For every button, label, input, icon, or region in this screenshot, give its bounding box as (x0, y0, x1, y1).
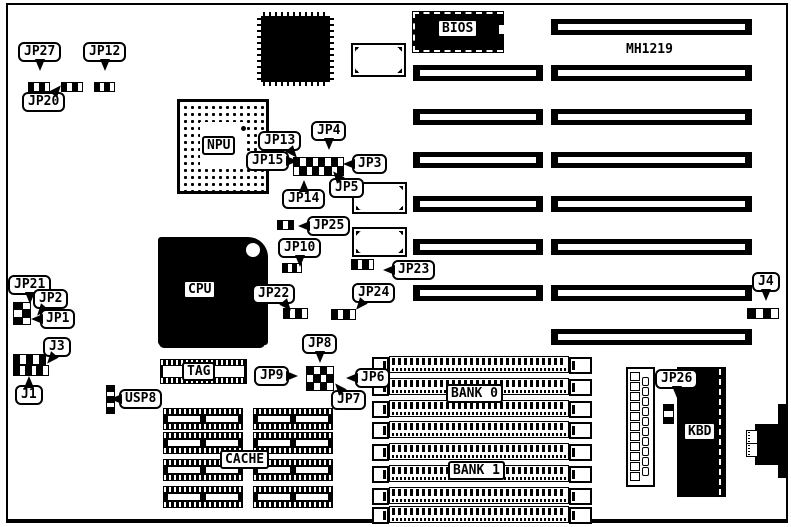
jp27-jumper (28, 82, 50, 92)
cache-socket-slot (258, 440, 290, 446)
jp8-jumper-block-pin (307, 367, 313, 374)
power-pin-hole (642, 377, 649, 386)
callout-jp10: JP10 (278, 238, 321, 258)
callout-jp20: JP20 (22, 92, 65, 112)
jp12-jumper-pin (100, 83, 104, 91)
simm-row-8-left-latch (372, 507, 389, 524)
callout-tail-jp10 (295, 255, 305, 267)
cache-socket-slot (206, 494, 238, 500)
cache-socket-slot (206, 416, 238, 422)
callout-label-jp9: JP9 (260, 368, 283, 383)
simm-row-1-right-latch (569, 357, 592, 374)
jp24-jumper (331, 309, 356, 320)
callout-jp23: JP23 (392, 260, 435, 280)
callout-tail-j1 (24, 376, 34, 388)
j1-header-pin (14, 366, 19, 375)
callout-jp5: JP5 (329, 178, 364, 198)
jp12-jumper (94, 82, 115, 92)
power-connector (626, 367, 655, 487)
isa-slot-2-left (413, 65, 543, 81)
keyboard-connector-pin-top (746, 430, 758, 444)
j1-header-pin (32, 366, 37, 375)
jp26-jumper-pin (664, 411, 673, 416)
chipset-qfp-chip (261, 16, 330, 82)
oscillator-3 (352, 227, 407, 257)
jp8-jumper-block-pin (321, 367, 327, 374)
callout-label-jp25: JP25 (313, 218, 344, 233)
tag-label: TAG (182, 362, 215, 381)
jp27-jumper-pin (40, 83, 44, 91)
qfp-pins-bottom (263, 82, 328, 86)
isa-slot-4 (551, 152, 752, 168)
jp27-jumper-pin (45, 83, 49, 91)
j3-header (13, 354, 46, 365)
callout-usp8: USP8 (119, 389, 162, 409)
power-pin-hole (642, 397, 649, 406)
keyboard-connector-bracket (778, 404, 787, 478)
jp24-jumper-pin (338, 310, 343, 319)
j3-header-pin (33, 355, 38, 364)
simm-row-3-left-latch (372, 401, 389, 418)
npu-jumper-block-pin (313, 167, 318, 175)
callout-jp22: JP22 (252, 284, 295, 304)
j1-header-pin (26, 366, 31, 375)
power-pin-hole (630, 412, 640, 421)
power-pin-hole (642, 407, 649, 416)
cache-socket-1 (163, 408, 243, 430)
oscillator-1 (351, 43, 406, 77)
j4-jumper-pin (764, 309, 771, 318)
j4-jumper-pin (748, 309, 755, 318)
callout-jp9: JP9 (254, 366, 289, 386)
npu-jumper-block-pin (332, 158, 337, 166)
callout-label-jp12: JP12 (89, 44, 120, 59)
jp20-jumper (61, 82, 83, 92)
jp25-jumper-pin (283, 221, 287, 229)
jp23-jumper-pin (369, 260, 374, 269)
callout-tail-jp15 (286, 156, 298, 166)
power-pin-hole (630, 402, 640, 411)
callout-tail-j4 (761, 289, 771, 301)
callout-tail-jp14 (299, 180, 309, 192)
jp26-jumper-pin (664, 418, 673, 423)
isa-slot-6 (551, 239, 752, 255)
j4-jumper-pin (756, 309, 763, 318)
simm-row-7-right-latch (569, 488, 592, 505)
jp8-jumper-block (306, 366, 334, 391)
callout-tail-jp27 (35, 59, 45, 71)
cache-socket-slot (168, 440, 200, 446)
callout-tail-usp8 (110, 394, 122, 404)
isa-slot-5-left (413, 196, 543, 212)
power-pin-hole (630, 452, 640, 461)
callout-tail-jp8 (315, 351, 325, 363)
callout-jp13: JP13 (258, 131, 301, 151)
callout-tail-jp3 (343, 159, 355, 169)
jp8-jumper-block-pin (321, 375, 327, 382)
npu-jumper-block-pin (319, 158, 324, 166)
j3-header-pin (20, 355, 25, 364)
isa-slot-4-left (413, 152, 543, 168)
simm-row-5-left-latch (372, 444, 389, 461)
isa-slot-2 (551, 65, 752, 81)
jp12-jumper-pin (105, 83, 109, 91)
jp8-jumper-block-pin (314, 367, 320, 374)
simm-row-1 (389, 356, 569, 373)
callout-jp12: JP12 (83, 42, 126, 62)
isa-slot-1 (551, 19, 752, 35)
jp24-jumper-pin (350, 310, 355, 319)
cache-socket-slot (168, 467, 200, 473)
j1-header-pin (20, 366, 25, 375)
board-model-label: MH1219 (626, 42, 673, 57)
npu-jumper-block-pin (319, 167, 324, 175)
callout-jp27: JP27 (18, 42, 61, 62)
callout-jp24: JP24 (352, 283, 395, 303)
isa-slot-7-left (413, 285, 543, 301)
usp8-jumper-pin (107, 386, 114, 391)
power-pin-hole (630, 432, 640, 441)
simm-row-8-right-latch (569, 507, 592, 524)
simm-row-4 (389, 421, 569, 438)
callout-jp2: JP2 (33, 289, 68, 309)
power-pin-hole (642, 467, 649, 476)
jp23-jumper (351, 259, 374, 270)
cache-socket-slot (296, 467, 328, 473)
callout-label-jp10: JP10 (284, 240, 315, 255)
cpu-label: CPU (183, 280, 216, 299)
callout-jp4: JP4 (311, 121, 346, 141)
power-pin-hole (630, 372, 640, 381)
cpu-pin1-marker (246, 243, 260, 257)
isa-slot-3-left (413, 109, 543, 125)
motherboard-diagram: MH1219 NPU CPU BIOS TAG CACHE BANK 0 BAN… (0, 0, 791, 527)
isa-slot-6-left (413, 239, 543, 255)
callout-label-jp27: JP27 (24, 44, 55, 59)
callout-tail-jp26 (672, 386, 682, 398)
callout-jp8: JP8 (302, 334, 337, 354)
jp24-jumper-pin (344, 310, 349, 319)
npu-pin1-marker (241, 126, 246, 131)
cache-socket-2 (253, 408, 333, 430)
simm-row-6-left-latch (372, 466, 389, 483)
npu-label: NPU (202, 136, 235, 155)
bank1-label: BANK 1 (448, 461, 505, 480)
npu-jumper-block-pin (307, 158, 312, 166)
callout-jp7: JP7 (331, 390, 366, 410)
j4-jumper (747, 308, 779, 319)
simm-row-3-right-latch (569, 401, 592, 418)
jp23-jumper-pin (363, 260, 368, 269)
jp12-jumper-pin (110, 83, 114, 91)
kbd-chip-dashed-line (719, 369, 721, 495)
power-pin-hole (630, 382, 640, 391)
jp24-jumper-pin (332, 310, 337, 319)
jp20-jumper-pin (78, 83, 82, 91)
cache-socket-slot (258, 416, 290, 422)
jp27-jumper-pin (29, 83, 33, 91)
jp21-jumper-block-pin (14, 318, 22, 324)
power-pin-hole (630, 472, 640, 481)
jp8-jumper-block-pin (327, 375, 333, 382)
isa-slot-5 (551, 196, 752, 212)
jp22-jumper-pin (296, 309, 301, 318)
callout-jp6: JP6 (355, 368, 390, 388)
simm-row-2-right-latch (569, 379, 592, 396)
cache-socket-slot (168, 416, 200, 422)
jp26-jumper (663, 404, 674, 424)
callout-label-jp24: JP24 (358, 285, 389, 300)
callout-label-jp15: JP15 (252, 153, 283, 168)
jp10-jumper-pin (288, 264, 292, 272)
j3-header-pin (27, 355, 32, 364)
jp23-jumper-pin (358, 260, 363, 269)
callout-tail-jp6 (346, 373, 358, 383)
simm-row-7-left-latch (372, 488, 389, 505)
callout-tail-jp9 (286, 371, 298, 381)
j3-header-pin (14, 355, 19, 364)
npu-jumper-block-pin (294, 167, 299, 175)
cache-socket-8 (253, 486, 333, 508)
keyboard-connector-body (755, 424, 779, 465)
simm-row-7 (389, 487, 569, 504)
simm-row-4-left-latch (372, 422, 389, 439)
j1-header-pin (37, 366, 42, 375)
isa-slot-8 (551, 329, 752, 345)
npu-jumper-block-pin (313, 158, 318, 166)
cache-socket-slot (296, 494, 328, 500)
callout-tail-jp23 (383, 265, 395, 275)
npu-jumper-block-pin (325, 158, 330, 166)
callout-jp14: JP14 (282, 189, 325, 209)
callout-jp15: JP15 (246, 151, 289, 171)
callout-label-jp4: JP4 (317, 123, 340, 138)
simm-row-4-right-latch (569, 422, 592, 439)
cache-socket-7 (163, 486, 243, 508)
power-pin-hole (630, 392, 640, 401)
callout-jp25: JP25 (307, 216, 350, 236)
jp25-jumper-pin (289, 221, 293, 229)
npu-jumper-block-pin (300, 167, 305, 175)
j1-header (13, 365, 49, 376)
jp21-jumper-block (13, 302, 31, 325)
jp23-jumper-pin (352, 260, 357, 269)
callout-tail-jp12 (100, 59, 110, 71)
jp20-jumper-pin (67, 83, 71, 91)
jp21-jumper-block-pin (23, 310, 31, 316)
bios-label: BIOS (437, 19, 478, 38)
callout-label-jp1: JP1 (46, 311, 69, 326)
simm-row-8 (389, 506, 569, 523)
callout-label-jp3: JP3 (358, 156, 381, 171)
jp8-jumper-block-pin (321, 383, 327, 390)
jp20-jumper-pin (73, 83, 77, 91)
cache-socket-slot (296, 416, 328, 422)
simm-row-5 (389, 443, 569, 460)
callout-label-jp26: JP26 (661, 371, 692, 386)
isa-slot-7 (551, 285, 752, 301)
power-pin-hole (642, 447, 649, 456)
jp8-jumper-block-pin (307, 375, 313, 382)
jp8-jumper-block-pin (327, 367, 333, 374)
bank0-label: BANK 0 (446, 384, 503, 403)
cache-socket-slot (206, 440, 238, 446)
callout-label-j1: J1 (21, 387, 37, 402)
npu-jumper-block-pin (300, 158, 305, 166)
jp21-jumper-block-pin (14, 303, 22, 309)
power-pin-hole (642, 437, 649, 446)
cache-socket-slot (258, 494, 290, 500)
tag-area-bar (159, 336, 265, 348)
callout-label-jp6: JP6 (361, 370, 384, 385)
callout-tail-jp4 (324, 138, 334, 150)
j1-header-pin (43, 366, 48, 375)
qfp-pins-right (330, 18, 334, 80)
npu-jumper-block-pin (307, 167, 312, 175)
callout-label-jp23: JP23 (398, 262, 429, 277)
power-pin-hole (642, 457, 649, 466)
callout-j4: J4 (752, 272, 780, 292)
callout-j3: J3 (43, 337, 71, 357)
callout-jp3: JP3 (352, 154, 387, 174)
power-pin-hole (630, 422, 640, 431)
callout-tail-jp1 (31, 314, 43, 324)
power-pin-hole (642, 427, 649, 436)
callout-tail-jp25 (298, 221, 310, 231)
jp8-jumper-block-pin (314, 375, 320, 382)
jp12-jumper-pin (95, 83, 99, 91)
callout-jp1: JP1 (40, 309, 75, 329)
usp8-jumper-pin (107, 408, 114, 413)
simm-row-6-right-latch (569, 466, 592, 483)
callout-label-jp8: JP8 (308, 336, 331, 351)
power-pin-hole (630, 442, 640, 451)
jp27-jumper-pin (34, 83, 38, 91)
jp25-jumper-pin (278, 221, 282, 229)
kbd-label: KBD (683, 422, 716, 441)
isa-slot-3 (551, 109, 752, 125)
jp25-jumper (277, 220, 294, 230)
keyboard-connector-pin-bottom (746, 443, 758, 457)
callout-label-jp14: JP14 (288, 191, 319, 206)
power-pin-hole (642, 387, 649, 396)
jp8-jumper-block-pin (314, 383, 320, 390)
jp21-jumper-block-pin (14, 310, 22, 316)
cache-socket-slot (168, 494, 200, 500)
jp21-jumper-block-pin (23, 318, 31, 324)
power-pin-hole (642, 417, 649, 426)
cache-label: CACHE (220, 450, 269, 469)
power-pin-hole (630, 462, 640, 471)
bios-chip-notch (499, 25, 505, 34)
j4-jumper-pin (771, 309, 778, 318)
jp8-jumper-block-pin (307, 383, 313, 390)
jp22-jumper-pin (302, 309, 307, 318)
callout-label-usp8: USP8 (125, 391, 156, 406)
jp26-jumper-pin (664, 405, 673, 410)
callout-j1: J1 (15, 385, 43, 405)
simm-row-5-right-latch (569, 444, 592, 461)
jp10-jumper-pin (283, 264, 287, 272)
callout-label-j4: J4 (758, 274, 774, 289)
cache-socket-slot (296, 440, 328, 446)
callout-jp26: JP26 (655, 369, 698, 389)
